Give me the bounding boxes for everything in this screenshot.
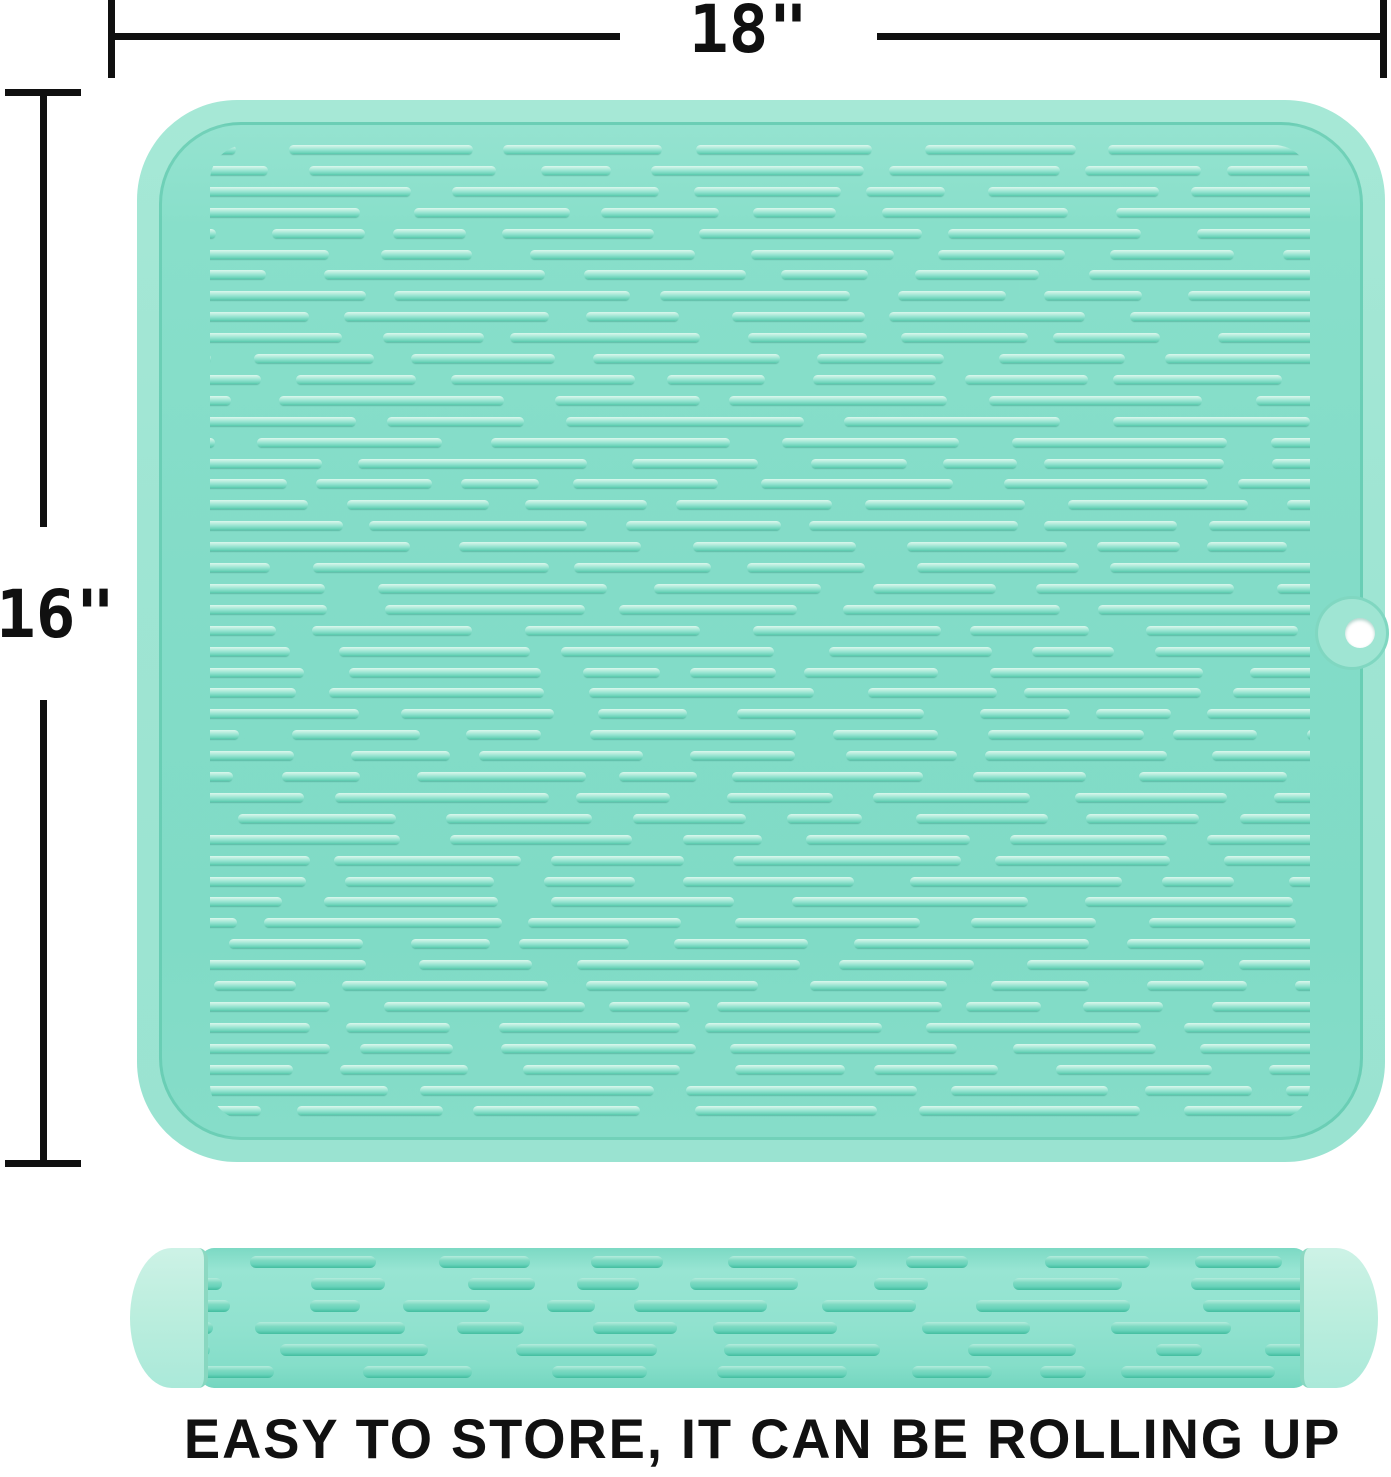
roll-ridge-dash (968, 1344, 1076, 1356)
ridge-dash (1188, 291, 1310, 300)
ridge-dash (329, 688, 545, 697)
drying-mat-front-view (137, 100, 1385, 1162)
ridge-dash (916, 814, 1048, 823)
ridge-dash (654, 584, 821, 593)
ridge-dash (683, 877, 854, 886)
roll-ridge-dash (250, 1256, 375, 1268)
ridge-dash (1240, 814, 1310, 823)
ridge-dash (1113, 375, 1281, 384)
ridge-dash (980, 709, 1070, 718)
ridge-dash (705, 1023, 881, 1032)
ridge-dash (523, 1065, 679, 1074)
roll-ridge-dash (912, 1366, 993, 1378)
ridge-dash (1075, 793, 1227, 802)
roll-ridge-dash (922, 1322, 1030, 1334)
ridge-dash (387, 417, 523, 426)
ridge-dash (210, 375, 261, 384)
ridge-dash (717, 1002, 942, 1011)
rolled-mat-view (130, 1248, 1378, 1388)
ridge-dash (503, 145, 663, 154)
ridge-dash (210, 145, 236, 154)
ridge-dash (747, 563, 865, 572)
ridge-dash (1108, 145, 1310, 154)
ridge-dash (811, 459, 907, 468)
roll-ridge-dash (591, 1256, 664, 1268)
ridge-dash (210, 521, 343, 530)
roll-ridge-dash (1195, 1256, 1282, 1268)
ridge-dash (1113, 417, 1309, 426)
height-line-bottom (40, 700, 47, 1162)
ridge-dash (541, 166, 612, 175)
ridge-dash (583, 668, 660, 677)
ridge-dash (907, 542, 1067, 551)
ridge-dash (210, 563, 270, 572)
ridge-dash (1184, 1106, 1310, 1115)
ridge-dash (844, 417, 1060, 426)
ridge-dash (1256, 396, 1310, 405)
ridge-dash (1116, 208, 1310, 217)
ridge-dash (214, 981, 297, 990)
ridge-dash (210, 479, 287, 488)
ridge-dash (210, 417, 356, 426)
ridge-dash (345, 877, 495, 886)
roll-ridge-dash (976, 1300, 1130, 1312)
ridge-dash (459, 542, 641, 551)
ridge-dash (813, 375, 936, 384)
product-infographic: 18" 16" EASY TO STORE, IT CAN BE ROLLING… (0, 0, 1391, 1477)
roll-ridge-dash (634, 1300, 767, 1312)
roll-ridge-dash (690, 1278, 798, 1290)
ridge-dash (782, 438, 959, 447)
ridge-dash (1024, 688, 1201, 697)
ridge-dash (1283, 250, 1310, 259)
ridge-dash (727, 793, 833, 802)
ridge-dash (995, 856, 1170, 865)
roll-ridge-dash (439, 1256, 531, 1268)
ridge-dash (586, 981, 757, 990)
ridge-dash (334, 856, 521, 865)
ridge-dash (833, 730, 938, 739)
roll-ridge-dash (457, 1322, 524, 1334)
ridge-dash (1155, 647, 1310, 656)
ridge-dash (210, 897, 282, 906)
ridge-dash (510, 333, 700, 342)
ridge-dash (210, 709, 359, 718)
ridge-dash (1027, 960, 1204, 969)
ridge-dash (1130, 312, 1310, 321)
ridge-dash (210, 584, 325, 593)
ridge-dash (973, 772, 1086, 781)
ridge-dash (1212, 751, 1310, 760)
ridge-dash (1013, 1044, 1156, 1053)
ridge-dash (632, 459, 758, 468)
roll-ridge-dash (552, 1366, 646, 1378)
ridge-dash (210, 542, 410, 551)
ridge-dash (1307, 730, 1310, 739)
ridge-dash (530, 250, 696, 259)
ridge-dash (882, 208, 1068, 217)
ridge-dash (210, 1086, 388, 1095)
ridge-dash (737, 709, 924, 718)
ridge-dash (347, 500, 489, 509)
ridge-dash (598, 709, 687, 718)
ridge-dash (971, 918, 1097, 927)
ridge-dash (1295, 981, 1310, 990)
ridge-dash (1036, 584, 1234, 593)
ridge-dash (1286, 1086, 1310, 1095)
roll-ridge-dash (280, 1344, 427, 1356)
ridge-dash (609, 1002, 689, 1011)
ridge-dash (210, 835, 400, 844)
ridge-dash (210, 459, 322, 468)
ridge-dash (229, 939, 363, 948)
ridge-dash (695, 1106, 877, 1115)
ridge-dash (917, 563, 1078, 572)
ridge-dash (210, 208, 360, 217)
ridge-dash (868, 688, 997, 697)
ridge-dash (601, 208, 719, 217)
ridge-dash (324, 270, 545, 279)
ridge-dash (667, 375, 766, 384)
roll-ridge-dash (1121, 1366, 1274, 1378)
ridge-dash (544, 877, 635, 886)
ridge-dash (417, 772, 586, 781)
ridge-dash (1224, 856, 1310, 865)
ridge-dash (1184, 1023, 1310, 1032)
ridge-dash (839, 960, 974, 969)
ridge-dash (210, 626, 276, 635)
ridge-dash (729, 396, 946, 405)
ridge-dash (446, 814, 592, 823)
ridge-dash (1098, 605, 1310, 614)
ridge-dash (626, 521, 781, 530)
ridge-dash (732, 312, 865, 321)
ridge-dash (393, 229, 466, 238)
ridge-dash (566, 417, 803, 426)
ridge-dash (1097, 542, 1180, 551)
roll-ridge-dash (822, 1300, 916, 1312)
ridge-dash (1086, 814, 1199, 823)
ridge-dash (1110, 250, 1235, 259)
ridge-dash (210, 1106, 261, 1115)
ridge-dash (1227, 166, 1310, 175)
ridge-dash (210, 960, 366, 969)
ridge-dash (491, 438, 730, 447)
ridge-dash (590, 730, 796, 739)
ridge-dash (349, 668, 541, 677)
ridge-dash (1197, 229, 1310, 238)
ridge-dash (1110, 563, 1310, 572)
ridge-dash (690, 668, 777, 677)
ridge-dash (1277, 584, 1310, 593)
roll-ridge-dash (1203, 1300, 1308, 1312)
ridge-dash (555, 396, 700, 405)
ridge-dash (210, 250, 329, 259)
ridge-dash (1207, 542, 1287, 551)
ridge-dash (210, 877, 306, 886)
ridge-dash (551, 856, 684, 865)
ridge-dash (966, 1002, 1042, 1011)
roll-ridge-dash (468, 1278, 535, 1290)
ridge-dash (674, 939, 808, 948)
ridge-dash (683, 835, 762, 844)
ridge-dash (210, 1044, 330, 1053)
ridge-dash (1200, 1044, 1310, 1053)
ridge-dash (297, 1106, 443, 1115)
ridge-dash (360, 1044, 453, 1053)
ridge-dash (1085, 897, 1293, 906)
ridge-dash (210, 1065, 293, 1074)
ridge-dash (1233, 688, 1310, 697)
ridge-dash (748, 333, 868, 342)
ridge-dash (1289, 877, 1310, 886)
ridge-dash (676, 500, 832, 509)
ridge-dash (525, 500, 647, 509)
roll-ridge-dash (363, 1366, 472, 1378)
ridge-dash (1238, 479, 1310, 488)
ridge-dash (501, 1044, 696, 1053)
ridge-dash (804, 668, 938, 677)
ridge-dash (1146, 626, 1299, 635)
ridge-dash (210, 647, 290, 656)
width-line-right (877, 33, 1387, 40)
ridge-dash (943, 459, 1016, 468)
ridge-dash (210, 772, 233, 781)
ridge-dash (1218, 333, 1310, 342)
ridge-dash (915, 270, 1038, 279)
roll-ridge-dash (874, 1278, 928, 1290)
ridge-dash (340, 1065, 468, 1074)
mat-ridge-pattern (210, 145, 1310, 1120)
ridge-dash (948, 229, 1140, 238)
ridge-dash (873, 584, 996, 593)
ridge-dash (210, 229, 216, 238)
ridge-dash (1089, 270, 1310, 279)
ridge-dash (419, 960, 532, 969)
ridge-dash (866, 187, 945, 196)
ridge-dash (1269, 1065, 1310, 1074)
ridge-dash (414, 208, 570, 217)
ridge-dash (238, 814, 396, 823)
ridge-dash (502, 229, 654, 238)
ridge-dash (843, 605, 1060, 614)
roll-ridge-dash (200, 1366, 274, 1378)
ridge-dash (292, 730, 420, 739)
ridge-dash (1147, 981, 1248, 990)
ridge-dash (990, 668, 1202, 677)
roll-ridge-dash (311, 1278, 384, 1290)
ridge-dash (369, 521, 587, 530)
ridge-dash (619, 772, 697, 781)
roll-body (200, 1248, 1308, 1388)
caption: EASY TO STORE, IT CAN BE ROLLING UP (135, 1406, 1391, 1470)
ridge-dash (351, 751, 451, 760)
ridge-dash (1068, 500, 1248, 509)
roll-ridge-dash (1013, 1278, 1122, 1290)
ridge-dash (792, 897, 1029, 906)
roll-ridge-dash (713, 1322, 837, 1334)
roll-ridge-dash (724, 1344, 880, 1356)
ridge-dash (210, 166, 268, 175)
height-tick-bottom (5, 1160, 81, 1167)
ridge-dash (378, 584, 607, 593)
ridge-dash (289, 145, 473, 154)
ridge-dash (965, 375, 1088, 384)
ridge-dash (210, 396, 231, 405)
ridge-dash (1271, 438, 1310, 447)
ridge-dash (385, 605, 585, 614)
ridge-dash (633, 814, 746, 823)
ridge-dash (874, 1065, 998, 1074)
ridge-dash (577, 960, 800, 969)
ridge-dash (985, 751, 1167, 760)
ridge-dash (210, 312, 309, 321)
ridge-dash (865, 500, 1025, 509)
ridge-dash (1272, 459, 1310, 468)
ridge-dash (988, 187, 1159, 196)
ridge-dash (254, 354, 374, 363)
ridge-dash (264, 918, 503, 927)
ridge-dash (411, 354, 555, 363)
roll-ridge-dash (403, 1300, 489, 1312)
width-tick-right (1380, 0, 1387, 78)
ridge-dash (901, 333, 1028, 342)
ridge-dash (316, 479, 432, 488)
ridge-dash (401, 709, 554, 718)
ridge-dash (593, 354, 780, 363)
ridge-dash (699, 229, 922, 238)
ridge-dash (1287, 500, 1310, 509)
ridge-dash (733, 856, 961, 865)
ridge-dash (873, 793, 1029, 802)
ridge-dash (817, 354, 944, 363)
ridge-dash (384, 1002, 585, 1011)
ridge-dash (690, 751, 795, 760)
ridge-dash (1083, 1002, 1163, 1011)
ridge-dash (1145, 1086, 1252, 1095)
caption-text: EASY TO STORE, IT CAN BE ROLLING UP (184, 1406, 1341, 1471)
ridge-dash (309, 166, 496, 175)
roll-ridge-dash (255, 1322, 405, 1334)
ridge-dash (381, 250, 472, 259)
ridge-dash (1165, 354, 1310, 363)
roll-ridge-dash (577, 1278, 640, 1290)
ridge-dash (358, 459, 587, 468)
roll-ridge-dash (547, 1300, 594, 1312)
ridge-dash (735, 918, 920, 927)
hang-hole (1345, 618, 1375, 648)
ridge-dash (1044, 521, 1177, 530)
ridge-dash (730, 1044, 957, 1053)
ridge-dash (751, 250, 895, 259)
ridge-dash (210, 688, 296, 697)
ridge-dash (210, 500, 308, 509)
ridge-dash (753, 626, 941, 635)
ridge-dash (339, 647, 531, 656)
ridge-dash (210, 187, 411, 196)
ridge-dash (999, 354, 1125, 363)
ridge-dash (1212, 1002, 1310, 1011)
ridge-dash (257, 438, 442, 447)
roll-ridge-dash (1191, 1278, 1308, 1290)
ridge-dash (210, 354, 211, 363)
ridge-dash (1207, 835, 1310, 844)
roll-ridge-dash (717, 1366, 847, 1378)
roll-ridge-dash (1111, 1322, 1231, 1334)
ridge-dash (528, 918, 681, 927)
roll-ridge-dash (593, 1322, 677, 1334)
ridge-dash (1085, 166, 1200, 175)
ridge-dash (450, 835, 632, 844)
ridge-dash (1044, 459, 1224, 468)
ridge-dash (1096, 709, 1172, 718)
ridge-dash (272, 229, 365, 238)
ridge-dash (686, 1086, 917, 1095)
ridge-dash (335, 793, 550, 802)
ridge-dash (210, 668, 304, 677)
roll-end-cap-left (130, 1248, 208, 1388)
ridge-dash (846, 751, 957, 760)
roll-ridge-dash (310, 1300, 360, 1312)
ridge-dash (732, 772, 923, 781)
ridge-dash (479, 751, 643, 760)
ridge-dash (926, 1023, 1141, 1032)
ridge-dash (1139, 772, 1286, 781)
ridge-dash (473, 1106, 640, 1115)
ridge-dash (1032, 647, 1114, 656)
roll-ridge-dash (1156, 1344, 1202, 1356)
ridge-dash (383, 333, 484, 342)
ridge-dash (1127, 939, 1310, 948)
ridge-dash (1004, 479, 1207, 488)
ridge-dash (210, 793, 304, 802)
ridge-dash (589, 688, 814, 697)
ridge-dash (210, 856, 310, 865)
ridge-dash (586, 312, 678, 321)
ridge-dash (573, 479, 718, 488)
ridge-dash (342, 981, 547, 990)
ridge-dash (451, 375, 635, 384)
width-line-left (108, 33, 620, 40)
ridge-dash (1239, 960, 1310, 969)
ridge-dash (925, 145, 1075, 154)
ridge-dash (210, 1023, 310, 1032)
ridge-dash (806, 835, 969, 844)
width-label: 18" (620, 0, 877, 65)
ridge-dash (991, 981, 1090, 990)
ridge-dash (988, 730, 1144, 739)
ridge-dash (210, 333, 342, 342)
roll-ridge-dash (1045, 1256, 1150, 1268)
ridge-dash (1191, 187, 1310, 196)
ridge-dash (735, 1065, 845, 1074)
ridge-dash (809, 521, 1019, 530)
ridge-dash (989, 396, 1202, 405)
ridge-dash (576, 793, 669, 802)
ridge-dash (898, 291, 1006, 300)
ridge-dash (829, 647, 992, 656)
ridge-dash (619, 605, 796, 614)
ridge-dash (313, 563, 549, 572)
ridge-dash (210, 270, 266, 279)
ridge-dash (296, 375, 417, 384)
ridge-dash (810, 981, 947, 990)
ridge-dash (499, 1023, 680, 1032)
ridge-dash (951, 1086, 1108, 1095)
ridge-dash (854, 939, 1090, 948)
ridge-dash (1173, 730, 1257, 739)
ridge-dash (1044, 291, 1142, 300)
